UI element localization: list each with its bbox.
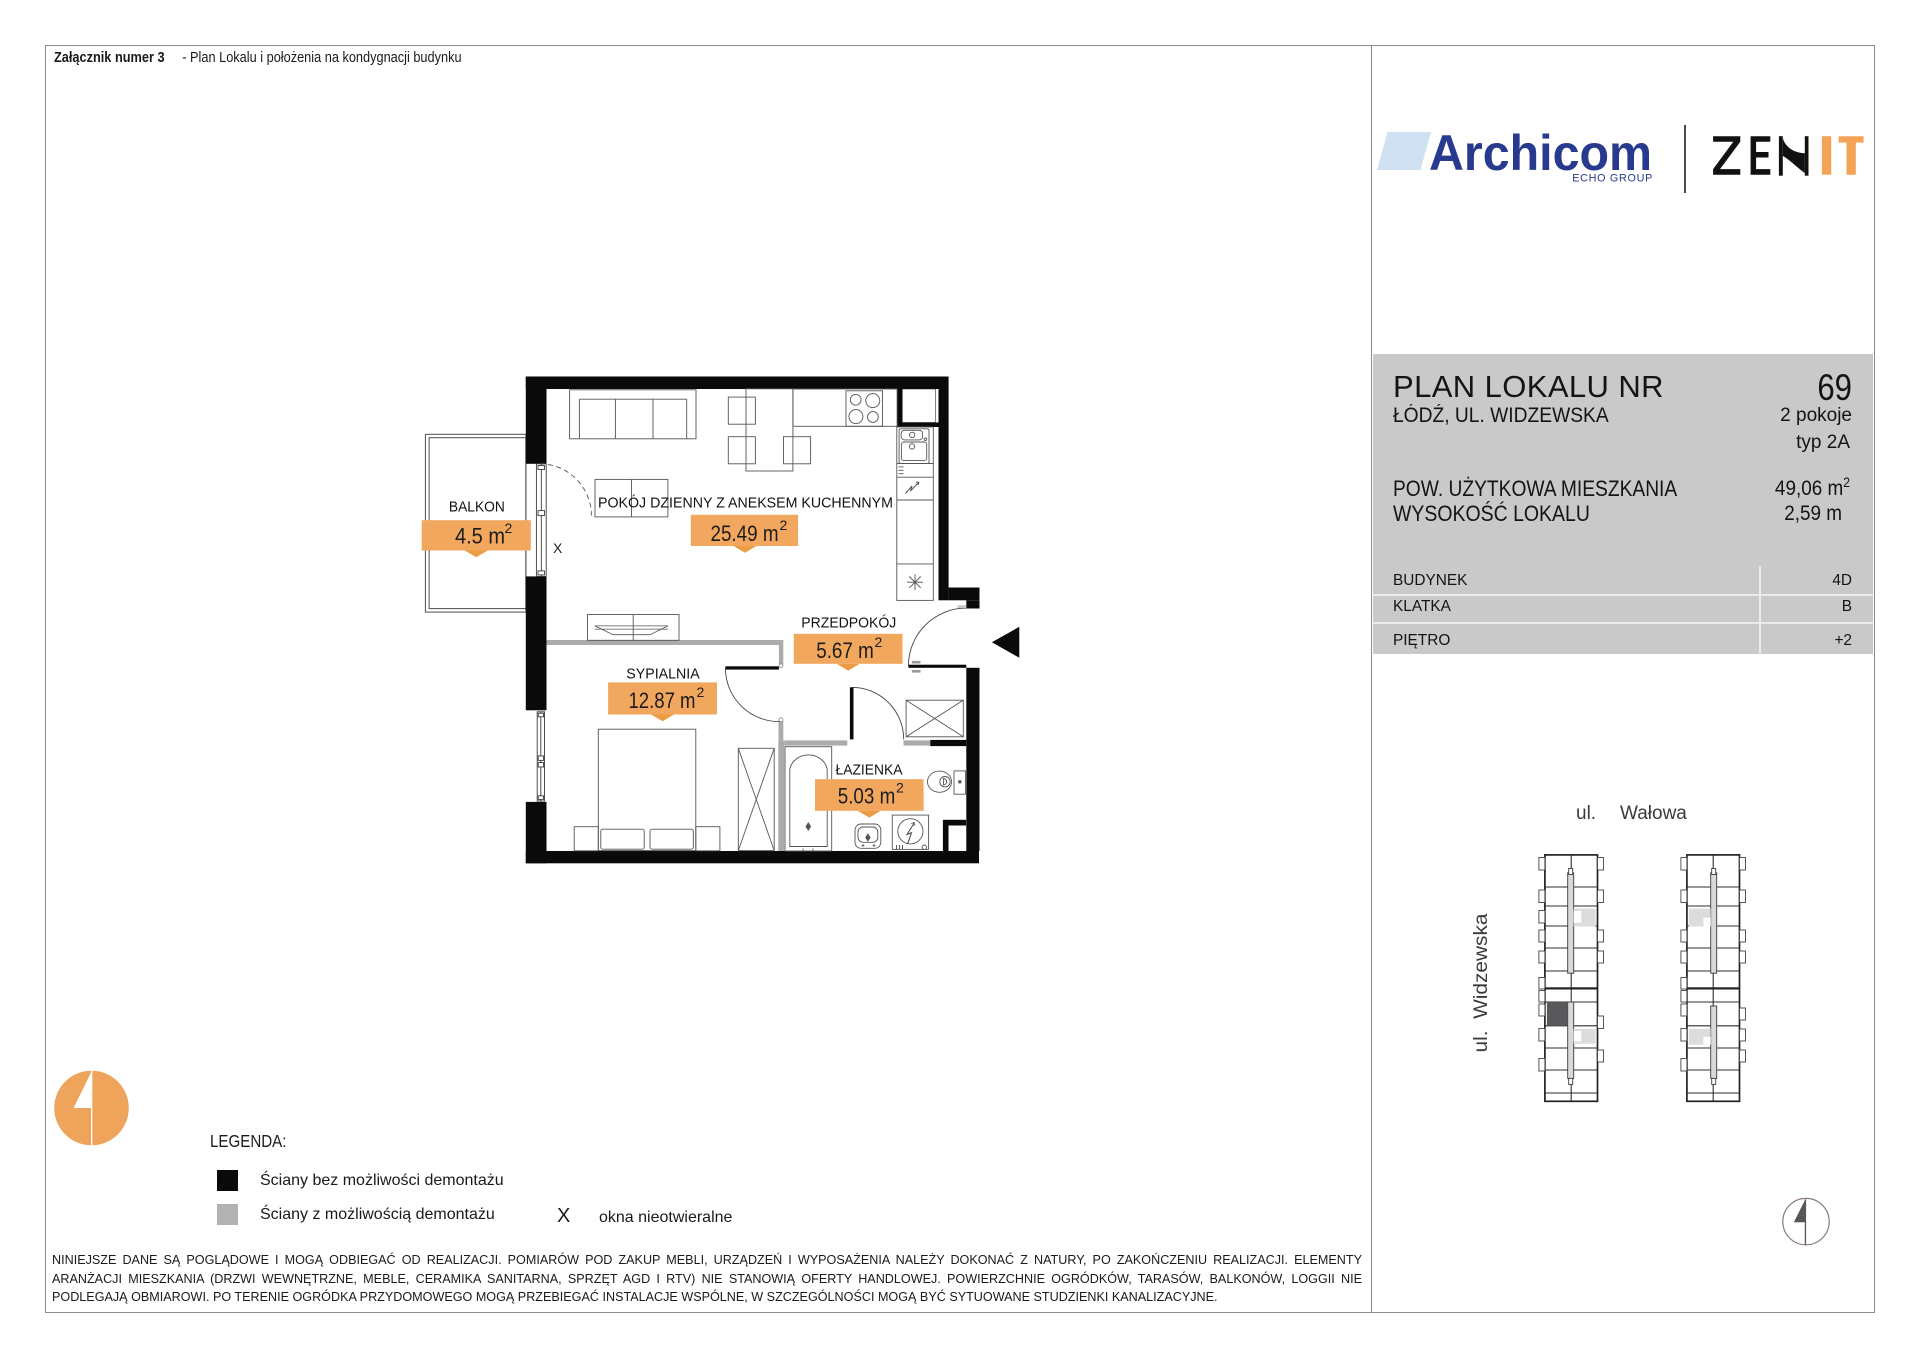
svg-text:25.49 m: 25.49 m xyxy=(711,521,779,546)
svg-text:2: 2 xyxy=(697,684,705,700)
svg-text:4.5 m: 4.5 m xyxy=(455,524,505,549)
svg-text:ECHO GROUP: ECHO GROUP xyxy=(1572,173,1653,185)
svg-text:2: 2 xyxy=(875,634,883,650)
svg-text:ul.: ul. xyxy=(1576,803,1596,824)
svg-text:POKÓJ DZIENNY Z ANEKSEM KUCHEN: POKÓJ DZIENNY Z ANEKSEM KUCHENNYM xyxy=(598,495,893,512)
svg-text:2: 2 xyxy=(896,780,904,796)
svg-text:PRZEDPOKÓJ: PRZEDPOKÓJ xyxy=(801,615,896,632)
svg-text:ŁAZIENKA: ŁAZIENKA xyxy=(836,762,903,779)
svg-text:2: 2 xyxy=(780,517,788,533)
svg-text:BALKON: BALKON xyxy=(449,499,505,516)
svg-text:ul. Widzewska: ul. Widzewska xyxy=(1471,913,1492,1052)
svg-text:X: X xyxy=(553,540,563,556)
svg-text:SYPIALNIA: SYPIALNIA xyxy=(626,666,700,683)
svg-text:5.03 m: 5.03 m xyxy=(838,784,896,809)
svg-text:Wałowa: Wałowa xyxy=(1620,803,1687,824)
svg-text:5.67 m: 5.67 m xyxy=(816,638,874,663)
svg-text:2: 2 xyxy=(505,520,513,536)
svg-text:12.87 m: 12.87 m xyxy=(629,688,696,713)
